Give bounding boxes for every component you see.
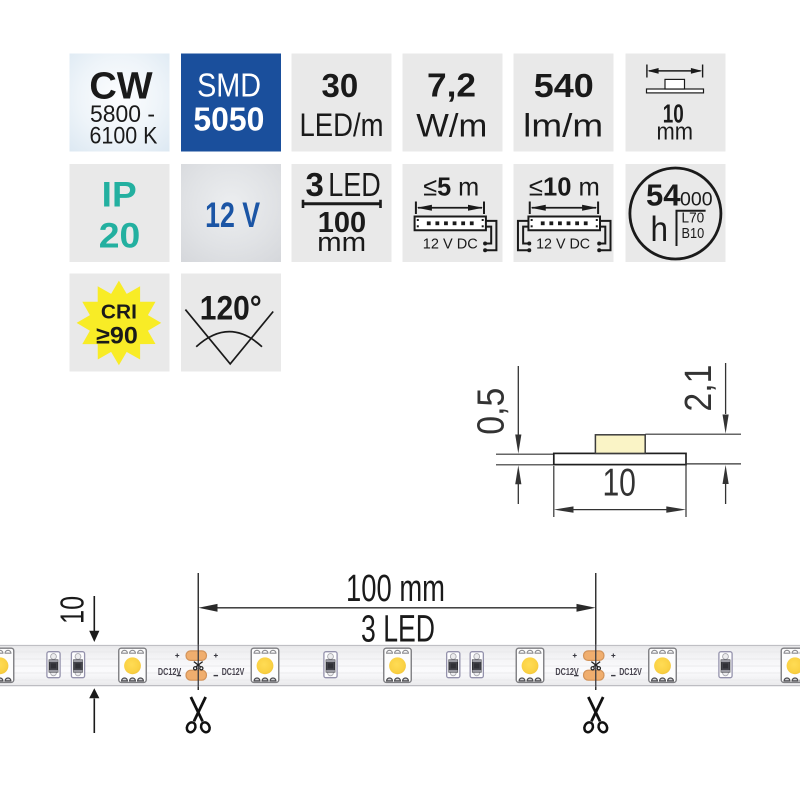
svg-text:SMD: SMD — [197, 67, 261, 104]
svg-text:6100 K: 6100 K — [90, 123, 159, 150]
svg-text:3: 3 — [306, 166, 324, 203]
svg-text:30: 30 — [322, 67, 359, 104]
svg-text:B10: B10 — [682, 226, 705, 242]
svg-text:10: 10 — [602, 462, 636, 505]
svg-text:DC12V: DC12V — [619, 666, 642, 678]
svg-text:0,5: 0,5 — [471, 388, 513, 435]
svg-text:20: 20 — [99, 217, 141, 256]
svg-text:12 V: 12 V — [205, 196, 261, 235]
svg-text:12 V DC: 12 V DC — [423, 235, 478, 252]
svg-text:DC12V: DC12V — [222, 666, 245, 678]
svg-text:h: h — [651, 210, 669, 249]
svg-text:DC12V: DC12V — [158, 666, 181, 678]
svg-text:100 mm: 100 mm — [346, 568, 445, 610]
svg-text:≤5 m: ≤5 m — [423, 172, 479, 202]
svg-text:2,1: 2,1 — [678, 365, 720, 412]
svg-text:mm: mm — [656, 119, 693, 146]
svg-text:120°: 120° — [200, 290, 262, 328]
svg-text:LED: LED — [328, 166, 381, 203]
svg-text:5050: 5050 — [193, 101, 264, 138]
svg-text:540: 540 — [534, 67, 594, 104]
svg-text:CRI: CRI — [101, 302, 137, 324]
svg-text:DC12V: DC12V — [555, 666, 578, 678]
svg-text:IP: IP — [102, 175, 137, 214]
svg-text:mm: mm — [317, 227, 366, 257]
svg-text:10: 10 — [55, 596, 92, 624]
svg-text:L70: L70 — [682, 211, 705, 227]
svg-text:≥90: ≥90 — [96, 323, 138, 350]
svg-text:W/m: W/m — [416, 107, 487, 143]
svg-text:LED/m: LED/m — [300, 107, 384, 143]
svg-text:≤10 m: ≤10 m — [529, 172, 600, 202]
svg-text:54: 54 — [646, 178, 681, 213]
svg-text:12 V DC: 12 V DC — [536, 235, 590, 252]
svg-text:3 LED: 3 LED — [361, 609, 435, 651]
svg-text:7,2: 7,2 — [427, 67, 476, 104]
svg-text:000: 000 — [680, 189, 713, 211]
svg-text:lm/m: lm/m — [523, 107, 603, 143]
